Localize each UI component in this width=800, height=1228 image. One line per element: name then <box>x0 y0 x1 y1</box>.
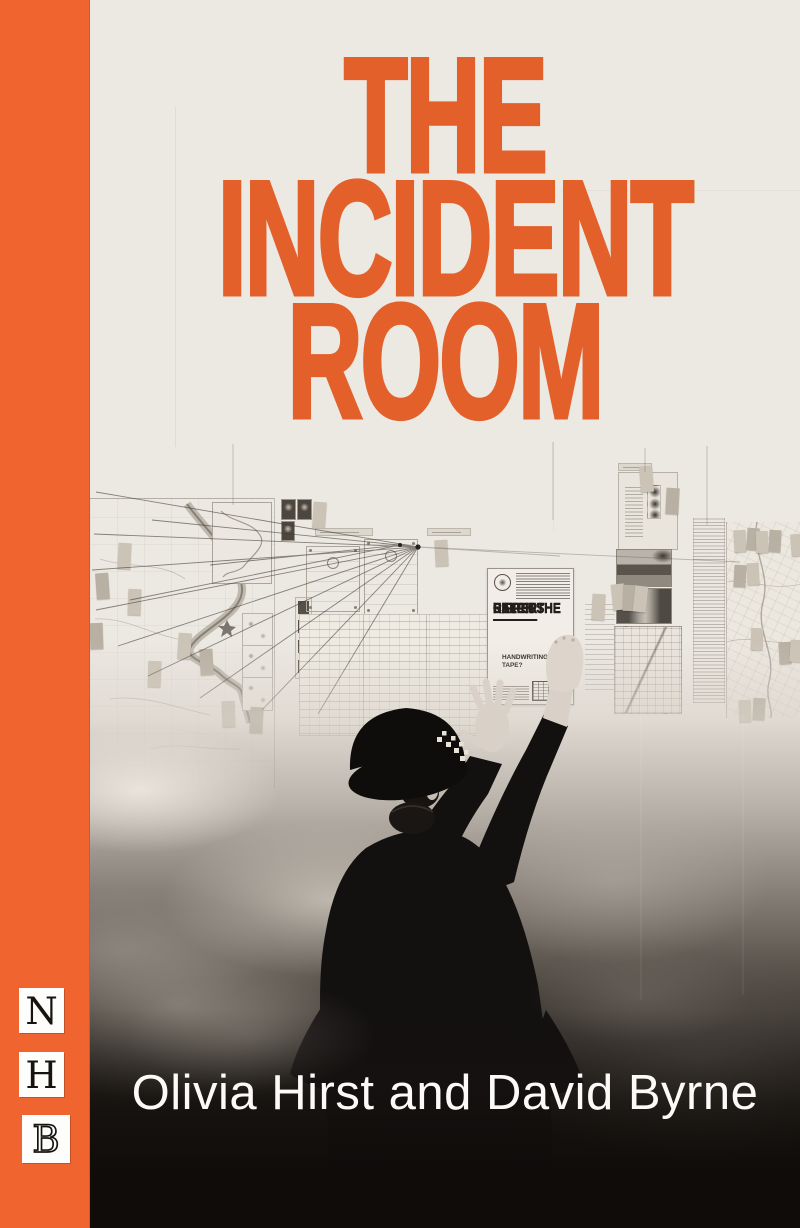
book-title: THE INCIDENT ROOM <box>90 54 800 423</box>
publisher-logo-letter-n: N <box>19 988 64 1033</box>
publisher-logo-letter-b: B <box>22 1115 70 1163</box>
author-names: Olivia Hirst and David Byrne <box>90 1064 800 1122</box>
book-cover: HELP US CATCH THE RIPPER HAVE YOU SEEN T… <box>0 0 800 1228</box>
spine-stripe <box>0 0 90 1228</box>
publisher-logo-letter-h: H <box>19 1052 64 1097</box>
title-line-3: ROOM <box>218 300 672 423</box>
